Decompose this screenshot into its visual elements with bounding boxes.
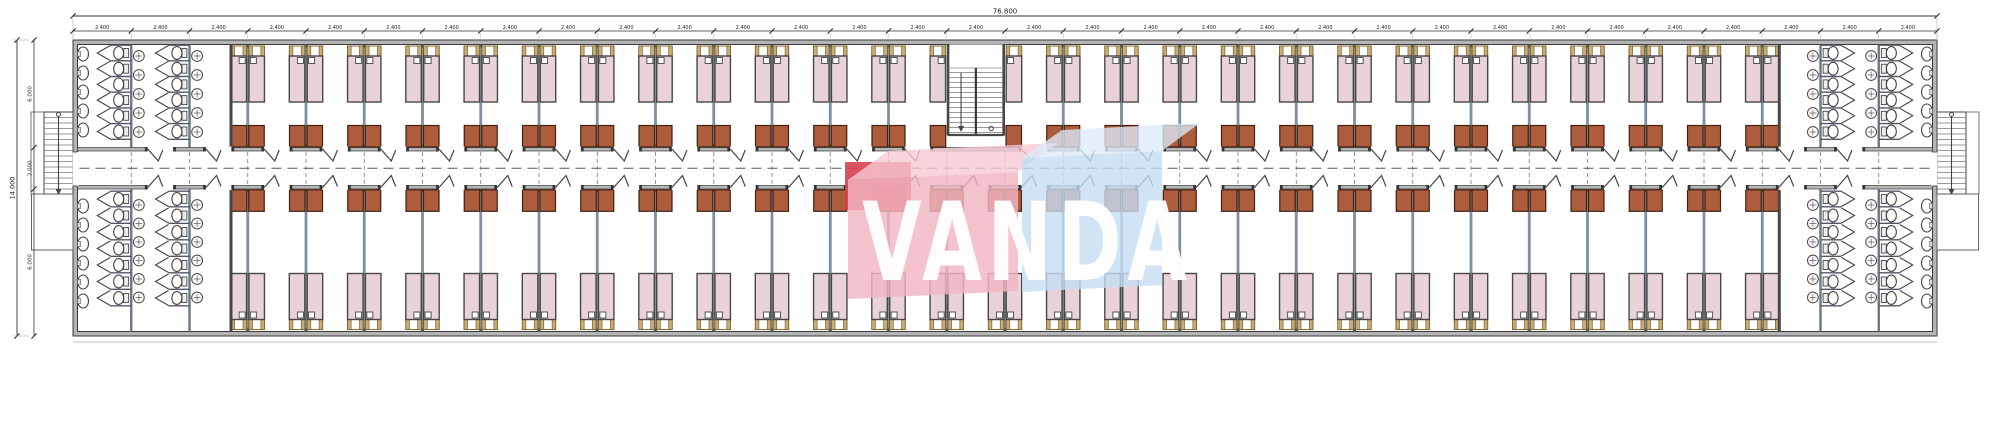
bed xyxy=(231,46,247,102)
dimension-label: 2.400 xyxy=(1726,25,1740,31)
bed xyxy=(831,46,847,102)
locker xyxy=(1338,126,1354,148)
dimension-label: 2.400 xyxy=(736,25,750,31)
bed xyxy=(1705,46,1721,102)
toilet xyxy=(1881,292,1896,305)
wash-basin xyxy=(133,89,144,100)
pillow xyxy=(891,312,897,318)
bed xyxy=(715,274,731,330)
pillow xyxy=(1532,312,1538,318)
bed xyxy=(598,274,614,330)
locker xyxy=(523,126,539,148)
toilet xyxy=(1881,259,1896,272)
locker xyxy=(424,126,440,148)
locker xyxy=(756,126,772,148)
locker xyxy=(307,126,323,148)
dimension-label: 2.400 xyxy=(561,25,575,31)
bed xyxy=(1239,46,1255,102)
pillow xyxy=(1124,312,1130,318)
sink xyxy=(78,47,89,61)
dimension-label: 2.400 xyxy=(444,25,458,31)
pillow xyxy=(658,58,664,64)
dimension-label: 2.400 xyxy=(1668,25,1682,31)
pillow xyxy=(1346,58,1352,64)
locker xyxy=(1629,126,1645,148)
pillow xyxy=(880,58,886,64)
pillow xyxy=(1765,58,1771,64)
sink xyxy=(78,237,89,251)
locker xyxy=(773,126,789,148)
toilet xyxy=(172,94,187,107)
wash-basin xyxy=(1808,292,1819,303)
locker xyxy=(365,126,381,148)
locker xyxy=(1006,126,1022,148)
locker xyxy=(1589,126,1605,148)
locker xyxy=(581,190,597,212)
exit-opening xyxy=(73,152,79,186)
bed xyxy=(464,46,480,102)
locker xyxy=(1589,190,1605,212)
pillow xyxy=(250,58,256,64)
pillow xyxy=(1637,58,1643,64)
locker xyxy=(348,190,364,212)
sink xyxy=(78,218,89,232)
bed xyxy=(1454,274,1470,330)
toilet xyxy=(1823,292,1838,305)
dimension-label: 6.000 xyxy=(28,86,34,102)
locker xyxy=(540,190,556,212)
pillow xyxy=(1229,312,1235,318)
bed xyxy=(581,274,597,330)
bed xyxy=(348,274,364,330)
pillow xyxy=(425,312,431,318)
locker xyxy=(773,190,789,212)
bed xyxy=(1513,274,1529,330)
pillow xyxy=(1532,58,1538,64)
wash-basin xyxy=(133,237,144,248)
sink xyxy=(78,123,89,137)
sink xyxy=(78,275,89,289)
toilet xyxy=(114,275,129,288)
toilet xyxy=(172,47,187,60)
bed xyxy=(1047,46,1063,102)
locker xyxy=(1571,126,1587,148)
pillow xyxy=(589,312,595,318)
wash-basin xyxy=(1808,255,1819,266)
locker xyxy=(482,190,498,212)
pillow xyxy=(1754,58,1760,64)
toilet xyxy=(1823,242,1838,255)
wash-basin xyxy=(1866,274,1877,285)
pillow xyxy=(483,58,489,64)
bed xyxy=(773,46,789,102)
pillow xyxy=(1462,58,1468,64)
locker xyxy=(1571,190,1587,212)
locker xyxy=(1513,126,1529,148)
bed xyxy=(1221,274,1237,330)
pillow xyxy=(600,312,606,318)
sink xyxy=(1922,237,1933,251)
pillow xyxy=(1695,58,1701,64)
bed xyxy=(1763,274,1779,330)
pillow xyxy=(250,312,256,318)
wash-basin xyxy=(1808,127,1819,138)
toilet xyxy=(172,193,187,206)
bed xyxy=(1647,274,1663,330)
wash-basin xyxy=(133,70,144,81)
pillow xyxy=(1113,58,1119,64)
bed xyxy=(464,274,480,330)
dimension-label: 2.400 xyxy=(153,25,167,31)
toilet xyxy=(172,259,187,272)
dimension-label: 2.400 xyxy=(95,25,109,31)
wash-basin xyxy=(192,127,203,138)
toilet xyxy=(114,109,129,122)
toilet xyxy=(114,193,129,206)
toilet xyxy=(172,109,187,122)
sink xyxy=(1922,66,1933,80)
locker xyxy=(1414,126,1430,148)
locker xyxy=(1705,190,1721,212)
locker xyxy=(697,126,713,148)
pillow xyxy=(1113,312,1119,318)
pillow xyxy=(1462,312,1468,318)
dimension-label: 14.000 xyxy=(9,177,17,200)
locker xyxy=(657,190,673,212)
toilet xyxy=(114,47,129,60)
bed xyxy=(1746,274,1762,330)
bed xyxy=(1629,46,1645,102)
bed xyxy=(1396,274,1412,330)
bed xyxy=(1105,46,1121,102)
pillow xyxy=(1357,58,1363,64)
stair-rail xyxy=(1966,112,1979,194)
floor-plan-drawing: 76.8002.4002.4002.4002.4002.4002.4002.40… xyxy=(0,0,2000,427)
wash-basin xyxy=(1866,108,1877,119)
external-stair-right xyxy=(1931,112,1979,250)
dimension-label: 2.400 xyxy=(969,25,983,31)
pillow xyxy=(833,58,839,64)
stair-landing xyxy=(1937,194,1979,250)
bed xyxy=(1297,274,1313,330)
locker xyxy=(1356,190,1372,212)
pillow xyxy=(472,312,478,318)
bed xyxy=(1006,46,1022,102)
bed xyxy=(540,274,556,330)
toilet xyxy=(1823,275,1838,288)
wash-basin xyxy=(133,127,144,138)
pillow xyxy=(239,58,245,64)
toilet xyxy=(1823,209,1838,222)
pillow xyxy=(1288,58,1294,64)
bed xyxy=(522,46,538,102)
locker xyxy=(831,126,847,148)
pillow xyxy=(542,58,548,64)
pillow xyxy=(1415,312,1421,318)
locker xyxy=(1297,190,1313,212)
dimension-label: 2.400 xyxy=(1435,25,1449,31)
bed xyxy=(348,46,364,102)
bed xyxy=(540,46,556,102)
pillow xyxy=(775,312,781,318)
pillow xyxy=(1241,312,1247,318)
locker xyxy=(1297,126,1313,148)
sink xyxy=(1922,294,1933,308)
dimension-label: 2.400 xyxy=(1376,25,1390,31)
sink xyxy=(1922,123,1933,137)
toilet xyxy=(1881,62,1896,75)
pillow xyxy=(483,312,489,318)
pillow xyxy=(1299,58,1305,64)
wash-basin xyxy=(133,218,144,229)
bed xyxy=(1297,46,1313,102)
bed xyxy=(1239,274,1255,330)
pillow xyxy=(938,58,944,64)
dimension-label: 2.400 xyxy=(1901,25,1915,31)
wash-basin xyxy=(192,218,203,229)
wash-basin xyxy=(192,200,203,211)
pillow xyxy=(1765,312,1771,318)
pillow xyxy=(1695,312,1701,318)
bed xyxy=(289,274,305,330)
pillow xyxy=(367,58,373,64)
bed xyxy=(715,46,731,102)
pillow xyxy=(1066,312,1072,318)
bed xyxy=(1513,46,1529,102)
pillow xyxy=(1707,58,1713,64)
bed xyxy=(773,274,789,330)
pillow xyxy=(938,312,944,318)
pillow xyxy=(530,312,536,318)
bed xyxy=(1181,46,1197,102)
toilet xyxy=(172,226,187,239)
pillow xyxy=(658,312,664,318)
toilet xyxy=(172,78,187,91)
toilet xyxy=(1881,125,1896,138)
toilet xyxy=(1881,275,1896,288)
bed xyxy=(1647,46,1663,102)
dimension-label: 2.400 xyxy=(211,25,225,31)
locker xyxy=(1356,126,1372,148)
wash-basin xyxy=(1866,200,1877,211)
toilet xyxy=(114,78,129,91)
locker xyxy=(1338,190,1354,212)
wash-basin xyxy=(1808,70,1819,81)
locker xyxy=(406,126,422,148)
wash-basin xyxy=(1808,51,1819,62)
dimension-label: 2.400 xyxy=(503,25,517,31)
pillow xyxy=(297,312,303,318)
dimension-label: 2.400 xyxy=(1027,25,1041,31)
pillow xyxy=(775,58,781,64)
pillow xyxy=(1579,58,1585,64)
pillow xyxy=(1182,312,1188,318)
bed xyxy=(1064,46,1080,102)
locker xyxy=(1746,190,1762,212)
pillow xyxy=(1521,312,1527,318)
pillow xyxy=(1171,58,1177,64)
sink xyxy=(78,199,89,213)
bed xyxy=(814,274,830,330)
bed xyxy=(890,46,906,102)
locker xyxy=(1396,190,1412,212)
pillow xyxy=(239,312,245,318)
sink xyxy=(78,104,89,118)
bed xyxy=(1589,274,1605,330)
bed xyxy=(1571,46,1587,102)
sink xyxy=(78,256,89,270)
bed xyxy=(307,46,323,102)
locker xyxy=(424,190,440,212)
pillow xyxy=(1754,312,1760,318)
bed xyxy=(1763,46,1779,102)
toilet xyxy=(1881,78,1896,91)
toilet xyxy=(172,62,187,75)
locker xyxy=(1414,190,1430,212)
locker xyxy=(249,190,265,212)
bed xyxy=(406,46,422,102)
wash-basin xyxy=(133,108,144,119)
bed xyxy=(1530,274,1546,330)
locker xyxy=(1455,126,1471,148)
bed xyxy=(289,46,305,102)
locker xyxy=(1455,190,1471,212)
toilet xyxy=(1881,209,1896,222)
pillow xyxy=(891,58,897,64)
bed xyxy=(657,274,673,330)
pillow xyxy=(1299,312,1305,318)
pillow xyxy=(600,58,606,64)
pillow xyxy=(414,312,420,318)
bed xyxy=(1746,46,1762,102)
toilet xyxy=(1881,242,1896,255)
pillow xyxy=(1055,312,1061,318)
pillow xyxy=(1474,58,1480,64)
pillow xyxy=(356,312,362,318)
wash-basin xyxy=(1866,292,1877,303)
bed xyxy=(1123,46,1139,102)
locker xyxy=(598,126,614,148)
wash-basin xyxy=(133,274,144,285)
dimension-label: 2.400 xyxy=(1784,25,1798,31)
sink xyxy=(1922,275,1933,289)
pillow xyxy=(1241,58,1247,64)
bed xyxy=(639,46,655,102)
pillow xyxy=(1357,312,1363,318)
bed xyxy=(1280,274,1296,330)
dimension-label: 2.400 xyxy=(1085,25,1099,31)
toilet xyxy=(1823,62,1838,75)
bed xyxy=(365,46,381,102)
locker xyxy=(348,126,364,148)
locker xyxy=(814,126,830,148)
wash-basin xyxy=(133,255,144,266)
bed xyxy=(598,46,614,102)
locker xyxy=(1472,126,1488,148)
locker xyxy=(814,190,830,212)
toilet xyxy=(1881,109,1896,122)
locker xyxy=(249,126,265,148)
pillow xyxy=(1008,58,1014,64)
locker xyxy=(1647,190,1663,212)
locker xyxy=(872,126,888,148)
pillow xyxy=(1474,312,1480,318)
locker xyxy=(1705,126,1721,148)
bed xyxy=(755,274,771,330)
locker xyxy=(1472,190,1488,212)
bed xyxy=(1221,46,1237,102)
bed xyxy=(1629,274,1645,330)
wash-basin xyxy=(1808,218,1819,229)
bed xyxy=(1530,46,1546,102)
bed xyxy=(814,46,830,102)
locker xyxy=(1763,126,1779,148)
bed xyxy=(1280,46,1296,102)
bed xyxy=(522,274,538,330)
locker xyxy=(598,190,614,212)
dimension-label: 2.400 xyxy=(1202,25,1216,31)
wash-basin xyxy=(1866,127,1877,138)
toilet xyxy=(1823,47,1838,60)
locker xyxy=(1222,126,1238,148)
toilet xyxy=(114,292,129,305)
locker xyxy=(1688,190,1704,212)
toilet xyxy=(1881,226,1896,239)
locker xyxy=(715,190,731,212)
locker xyxy=(756,190,772,212)
pillow xyxy=(763,58,769,64)
dimension-label: 2.400 xyxy=(1609,25,1623,31)
pillow xyxy=(716,312,722,318)
bed xyxy=(1705,274,1721,330)
toilet xyxy=(1823,94,1838,107)
pillow xyxy=(414,58,420,64)
sink xyxy=(78,66,89,80)
dimension-label: 2.400 xyxy=(1318,25,1332,31)
pillow xyxy=(1648,312,1654,318)
pillow xyxy=(996,312,1002,318)
toilet xyxy=(1823,125,1838,138)
pillow xyxy=(647,312,653,318)
wash-basin xyxy=(133,200,144,211)
locker xyxy=(1746,126,1762,148)
dimension-label: 2.400 xyxy=(1551,25,1565,31)
bed xyxy=(1396,46,1412,102)
locker xyxy=(1530,190,1546,212)
pillow xyxy=(1171,312,1177,318)
pillow xyxy=(1579,312,1585,318)
dimension-label: 2.400 xyxy=(1260,25,1274,31)
wash-basin xyxy=(192,108,203,119)
toilet xyxy=(114,226,129,239)
locker xyxy=(406,190,422,212)
toilet xyxy=(172,209,187,222)
dimension-label: 2.400 xyxy=(619,25,633,31)
bed xyxy=(307,274,323,330)
locker xyxy=(231,190,247,212)
toilet xyxy=(1823,226,1838,239)
bed xyxy=(482,274,498,330)
bed xyxy=(639,274,655,330)
bed xyxy=(1338,46,1354,102)
pillow xyxy=(949,312,955,318)
toilet xyxy=(1823,78,1838,91)
locker xyxy=(930,126,946,148)
toilet xyxy=(172,242,187,255)
pillow xyxy=(1707,312,1713,318)
locker xyxy=(697,190,713,212)
pillow xyxy=(1182,58,1188,64)
